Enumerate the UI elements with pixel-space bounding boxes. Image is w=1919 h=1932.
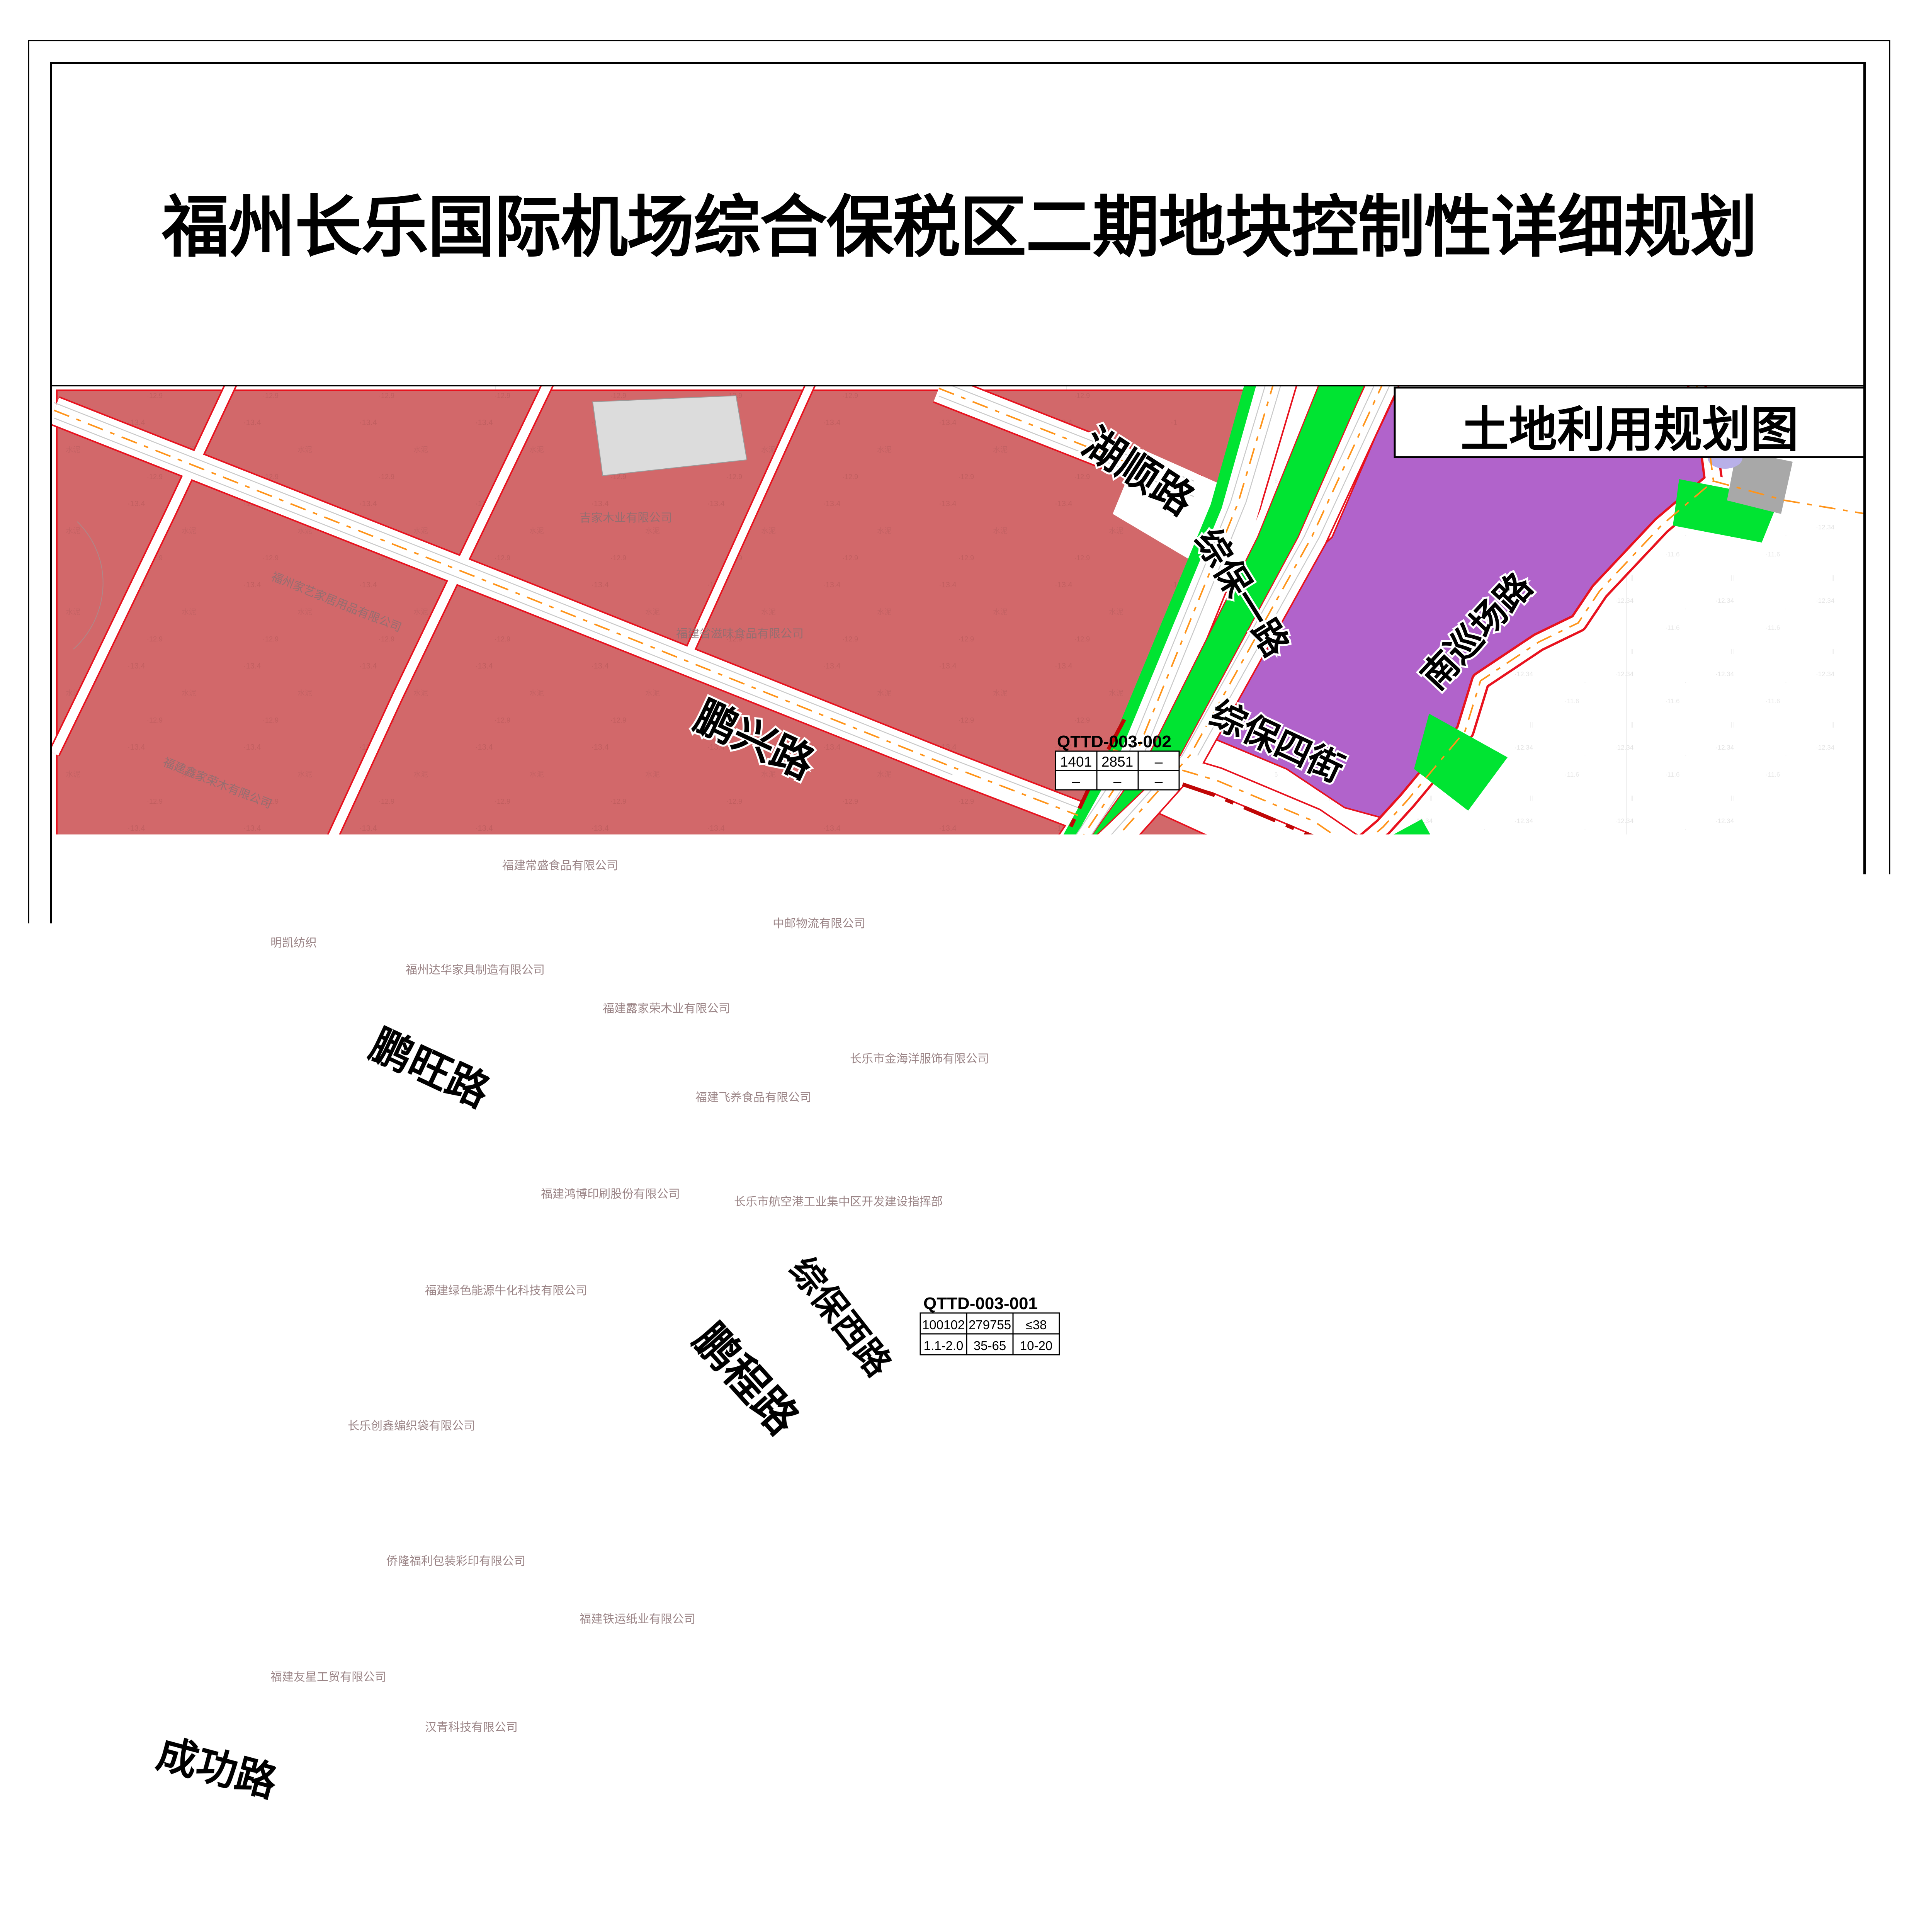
svg-text:福建飞养食品有限公司: 福建飞养食品有限公司 [695, 1091, 811, 1104]
svg-text:1401: 1401 [1324, 1048, 1356, 1064]
svg-text:汉青科技有限公司: 汉青科技有限公司 [425, 1721, 518, 1734]
svg-text:福建友星工贸有限公司: 福建友星工贸有限公司 [270, 1671, 386, 1684]
svg-text:818: 818 [975, 1616, 999, 1632]
svg-text:中邮物流有限公司: 中邮物流有限公司 [773, 917, 865, 930]
svg-text:福州长乐国际机场综合保税区二期地块控制性详细规划: 福州长乐国际机场综合保税区二期地块控制性详细规划 [161, 189, 1757, 265]
svg-text:福建铁运纸业有限公司: 福建铁运纸业有限公司 [580, 1613, 695, 1626]
svg-text:–: – [1025, 1635, 1033, 1651]
svg-text:福州（长乐）国际机场: 福州（长乐）国际机场 [1251, 1638, 1684, 1686]
svg-text:长乐市金海洋服饰有限公司: 长乐市金海洋服饰有限公司 [850, 1053, 989, 1065]
svg-text:279755: 279755 [969, 1318, 1011, 1332]
svg-text:–: – [1377, 1067, 1385, 1083]
svg-text:2851: 2851 [1101, 754, 1133, 770]
svg-text:QTTD-003-004: QTTD-003-004 [927, 1594, 1042, 1613]
svg-text:35-65: 35-65 [974, 1338, 1006, 1353]
svg-text:1401: 1401 [930, 1616, 962, 1632]
svg-text:–: – [1072, 773, 1080, 789]
svg-text:≤38: ≤38 [1026, 1318, 1047, 1332]
svg-text:福建露家荣木业有限公司: 福建露家荣木业有限公司 [603, 1002, 730, 1015]
svg-text:福建鸿博印刷股份有限公司: 福建鸿博印刷股份有限公司 [541, 1188, 680, 1201]
svg-text:–: – [942, 1635, 950, 1651]
svg-text:QTTD-003-001: QTTD-003-001 [923, 1294, 1038, 1313]
svg-text:QTTD-003-002: QTTD-003-002 [1057, 732, 1171, 751]
svg-text:福州达华家具制造有限公司: 福州达华家具制造有限公司 [406, 964, 545, 976]
svg-text:明凯纺织: 明凯纺织 [270, 937, 317, 949]
svg-text:福建绿色能源牛化科技有限公司: 福建绿色能源牛化科技有限公司 [425, 1284, 587, 1297]
svg-text:1401: 1401 [1060, 754, 1092, 770]
svg-text:–: – [1155, 773, 1163, 789]
svg-text:长乐市航空港工业集中区开发建设指挥部: 长乐市航空港工业集中区开发建设指挥部 [734, 1196, 943, 1208]
svg-text:土地利用规划图: 土地利用规划图 [1461, 403, 1799, 457]
svg-text:1.1-2.0: 1.1-2.0 [924, 1338, 964, 1353]
svg-text:–: – [1113, 773, 1122, 789]
svg-text:–: – [983, 1635, 991, 1651]
svg-text:长乐创鑫编织袋有限公司: 长乐创鑫编织袋有限公司 [348, 1420, 475, 1432]
svg-text:–: – [1155, 754, 1163, 770]
svg-text:–: – [1025, 1616, 1033, 1632]
svg-text:吉家木业有限公司: 吉家木业有限公司 [580, 512, 672, 524]
svg-text:922: 922 [1369, 1048, 1393, 1064]
svg-text:侨隆福利包装彩印有限公司: 侨隆福利包装彩印有限公司 [386, 1555, 525, 1568]
svg-text:10-20: 10-20 [1020, 1338, 1052, 1353]
svg-text:100102: 100102 [922, 1318, 965, 1332]
svg-text:–: – [1419, 1048, 1427, 1064]
svg-text:QTTD-003-003: QTTD-003-003 [1321, 1026, 1436, 1045]
svg-text:福建省滋味食品有限公司: 福建省滋味食品有限公司 [676, 628, 804, 640]
svg-text:–: – [1336, 1067, 1344, 1083]
svg-text:福建常盛食品有限公司: 福建常盛食品有限公司 [502, 859, 618, 872]
svg-text:–: – [1419, 1067, 1427, 1083]
